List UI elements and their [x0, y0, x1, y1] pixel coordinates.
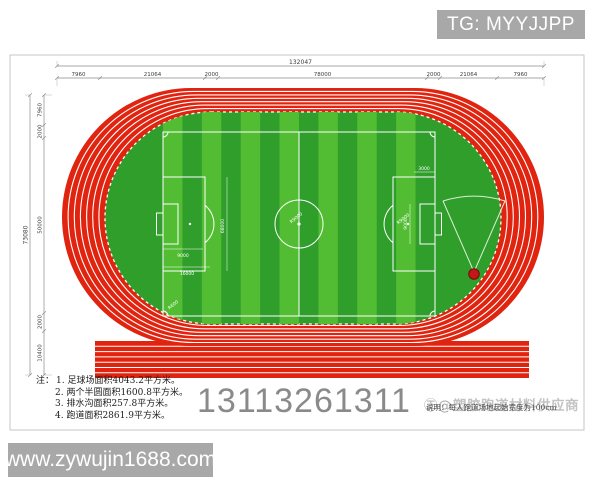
shot-put-circle: [469, 269, 479, 279]
right-top-label: 3000: [418, 166, 430, 172]
note-prefix: 注：: [36, 376, 54, 386]
dim-label: 50000: [38, 216, 44, 234]
dim-label: 78000: [314, 72, 332, 78]
left-total-label: 73080: [23, 225, 30, 244]
pitch-length-label: 68000: [220, 219, 226, 233]
left-dimension-labels: 73080 7960 2000 50000 2000 10400: [23, 103, 44, 362]
dim-label: 2000: [427, 72, 441, 78]
lane-width-note: 说明：每人跑道场地起始宽度为100cm: [426, 402, 557, 413]
sprint-straight-track: [95, 341, 529, 378]
top-total-label: 132047: [289, 59, 312, 66]
top-dimension-labels: 132047 7960 21064 2000 78000 2000 21064 …: [72, 59, 528, 78]
website-banner: www.zywujin1688.com: [8, 443, 213, 477]
stadium-drawing-page: 68000 R9000 R9000 9000 16000 9000 3000 R…: [0, 0, 600, 480]
right-goal-label: 9000: [403, 218, 409, 230]
supplier-watermark: ㊣@塑胶跑道材料供应商 说明：每人跑道场地起始宽度为100cm: [424, 394, 586, 420]
goal-area-label: 16000: [180, 271, 194, 277]
tg-contact-banner: TG: MYYJJPP: [437, 10, 585, 39]
dim-label: 7960: [38, 103, 44, 117]
dim-label: 7960: [514, 72, 528, 78]
dim-label: 2000: [205, 72, 219, 78]
tg-contact-text: TG: MYYJJPP: [447, 14, 575, 36]
dim-label: 2000: [38, 315, 44, 329]
dim-label: 10400: [38, 344, 44, 362]
dim-label: 7960: [72, 72, 86, 78]
phone-number: 13113261311: [192, 382, 416, 421]
goal-width-label: 9000: [177, 253, 189, 259]
dim-label: 21064: [460, 72, 478, 78]
note-text: 1. 足球场面积4043.2平方米。: [56, 376, 180, 386]
dim-label: 21064: [144, 72, 162, 78]
dim-label: 2000: [38, 124, 44, 138]
website-text: www.zywujin1688.com: [5, 448, 216, 472]
